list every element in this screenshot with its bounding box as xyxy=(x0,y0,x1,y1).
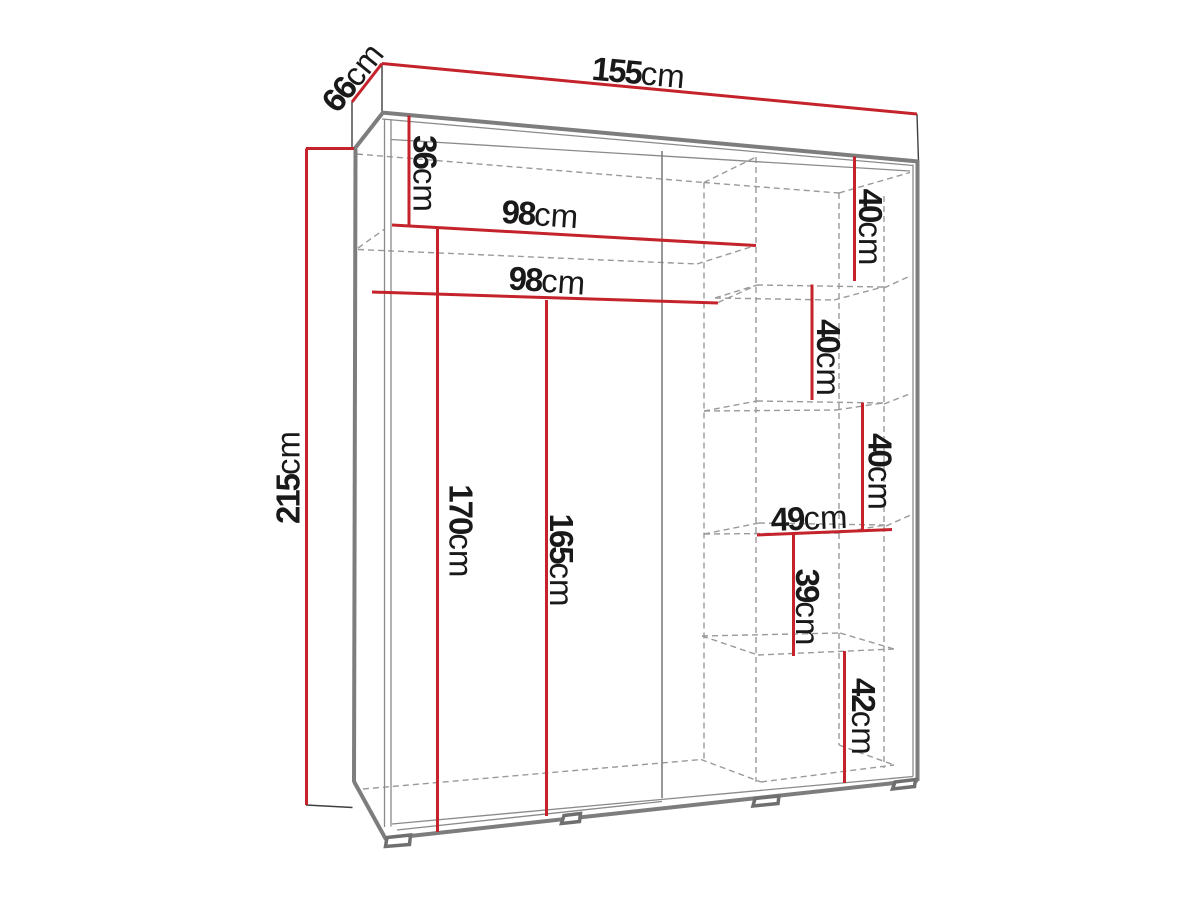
svg-text:40cm: 40cm xyxy=(862,433,899,510)
svg-text:40cm: 40cm xyxy=(811,319,848,396)
svg-text:66cm: 66cm xyxy=(314,35,391,118)
svg-text:98cm: 98cm xyxy=(507,259,586,301)
svg-text:39cm: 39cm xyxy=(790,569,827,646)
svg-text:98cm: 98cm xyxy=(500,192,579,234)
svg-text:215cm: 215cm xyxy=(269,431,306,524)
svg-text:170cm: 170cm xyxy=(443,484,480,577)
svg-text:49cm: 49cm xyxy=(770,497,848,537)
svg-text:40cm: 40cm xyxy=(853,189,890,266)
svg-text:155cm: 155cm xyxy=(590,49,686,94)
svg-text:36cm: 36cm xyxy=(407,135,444,212)
svg-text:42cm: 42cm xyxy=(845,678,882,755)
svg-text:165cm: 165cm xyxy=(544,513,581,606)
